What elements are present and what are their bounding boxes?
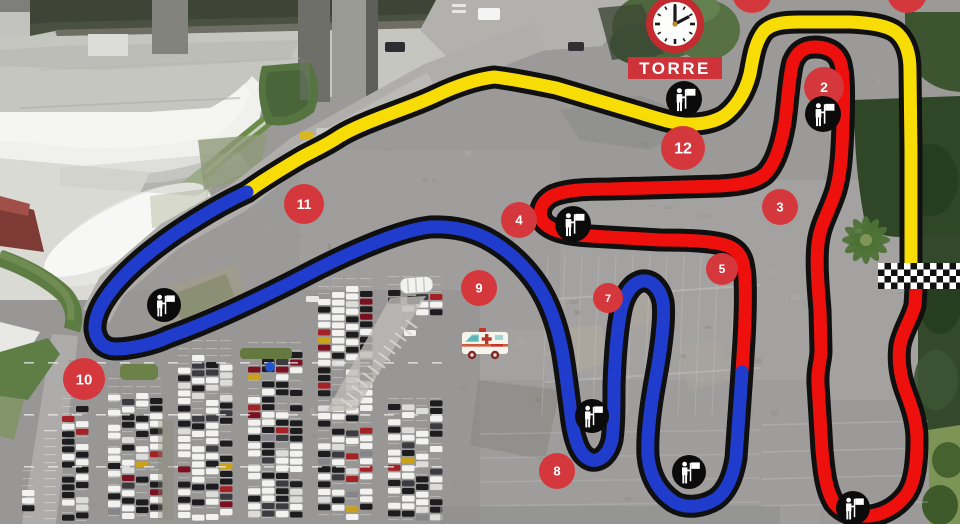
svg-text:8: 8 (553, 464, 560, 479)
svg-text:5: 5 (719, 262, 726, 276)
svg-text:11: 11 (297, 196, 312, 212)
svg-text:7: 7 (605, 293, 611, 305)
svg-text:TORRE: TORRE (639, 59, 711, 78)
svg-text:12: 12 (674, 141, 692, 158)
svg-text:4: 4 (515, 213, 523, 228)
svg-text:3: 3 (776, 200, 783, 215)
svg-text:9: 9 (475, 281, 482, 296)
svg-text:2: 2 (820, 79, 828, 95)
svg-text:10: 10 (76, 371, 93, 388)
